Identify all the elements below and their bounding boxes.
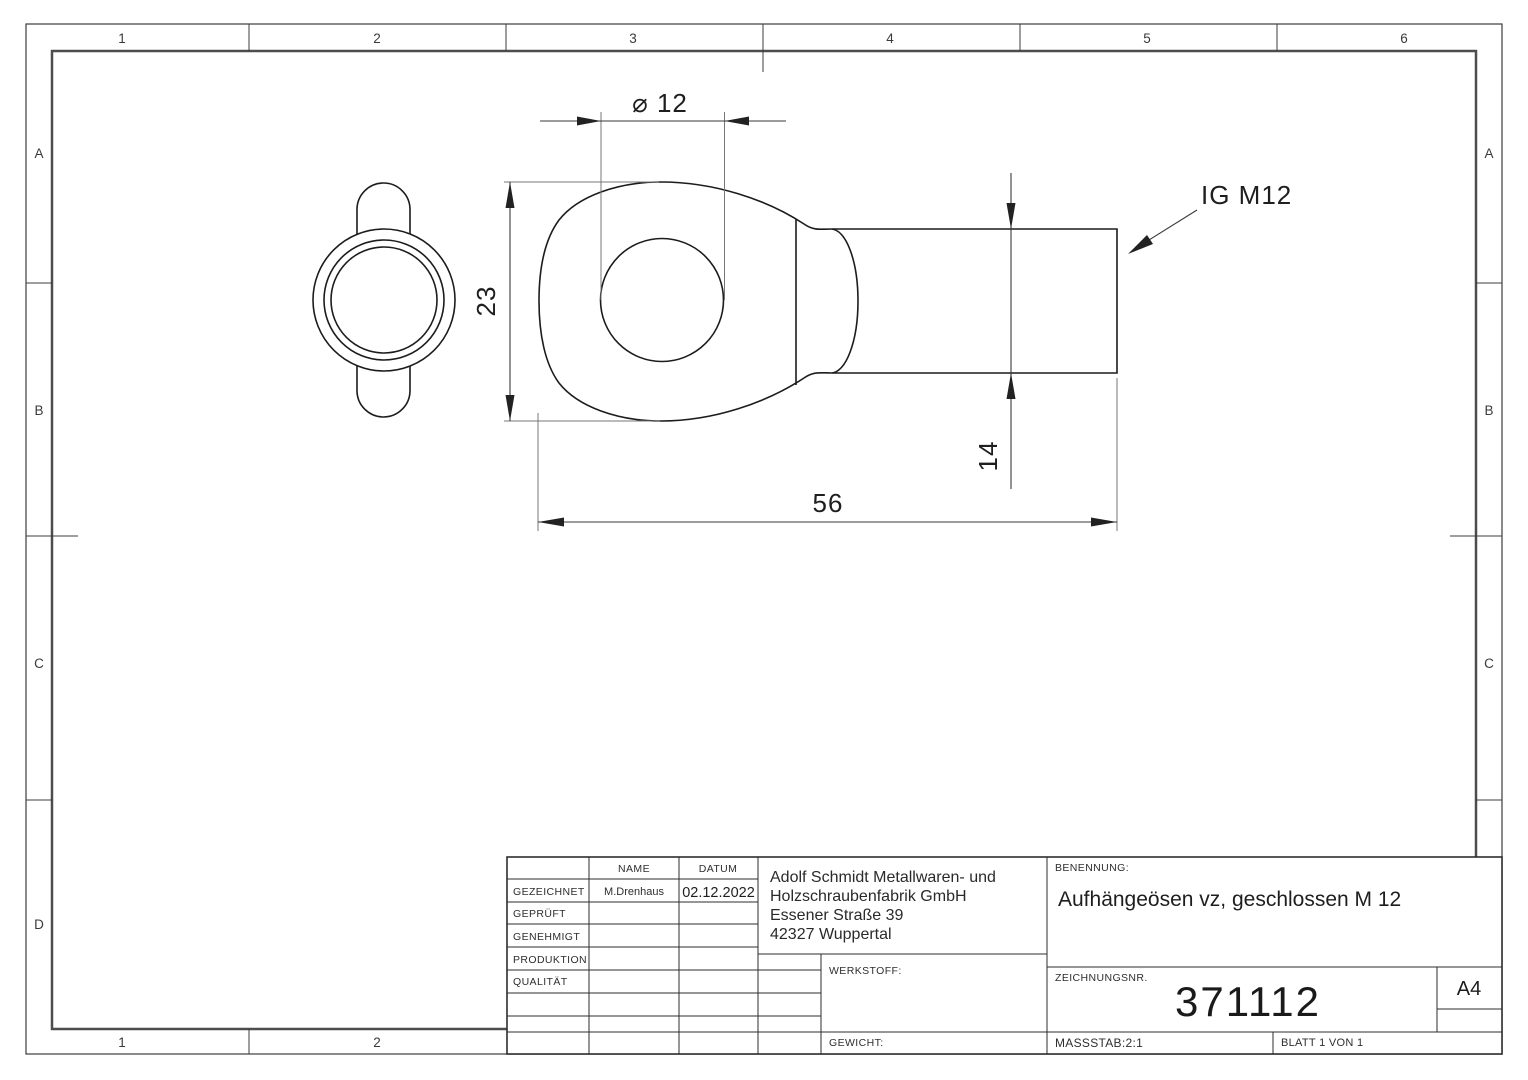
date-header: DATUM	[699, 863, 738, 875]
dim-arrow	[538, 518, 564, 527]
thread-callout: IG M12	[1128, 180, 1292, 254]
drawn-label: GEZEICHNET	[513, 886, 585, 898]
zone-row-label: A	[34, 146, 43, 161]
dim-shaft-diameter-text: 14	[973, 441, 1003, 472]
zone-row-label: A	[1484, 146, 1493, 161]
dim-shaft-diameter: 14	[973, 173, 1016, 489]
dim-arrow	[1007, 373, 1016, 399]
side-view	[539, 182, 1117, 421]
zone-col-label: 2	[373, 31, 381, 46]
dim-total-length-text: 56	[813, 488, 844, 518]
zone-col-label: 3	[629, 31, 637, 46]
zone-row-label: D	[34, 917, 44, 932]
drawing-sheet: 1 2 3 4 5 6 1 2 A B C D A B C ⌀ 12	[0, 0, 1528, 1080]
zone-row-label: C	[34, 656, 44, 671]
zone-col-label: 2	[373, 1035, 381, 1050]
dim-arrow	[506, 182, 515, 208]
front-view	[313, 183, 455, 417]
eye-outline	[539, 182, 858, 421]
zone-col-label: 1	[118, 31, 126, 46]
dim-arrow	[577, 117, 601, 126]
scale-text: MASSSTAB:2:1	[1055, 1036, 1143, 1050]
dim-arrow	[1007, 203, 1016, 229]
dim-eye-height-text: 23	[471, 286, 501, 317]
zone-row-label: C	[1484, 656, 1494, 671]
company-line: 42327 Wuppertal	[770, 926, 892, 943]
thread-label-text: IG M12	[1201, 180, 1292, 210]
leader-arrow	[1128, 235, 1153, 254]
zone-col-label: 5	[1143, 31, 1151, 46]
name-header: NAME	[618, 863, 650, 875]
checked-label: GEPRÜFT	[513, 908, 566, 920]
zone-row-label: B	[1484, 403, 1493, 418]
drawn-date: 02.12.2022	[682, 885, 755, 901]
weight-label: GEWICHT:	[829, 1037, 884, 1049]
front-view-outer-ring	[313, 229, 455, 371]
drawing-no: 371112	[1175, 978, 1321, 1025]
dim-arrow	[506, 395, 515, 421]
company-line: Holzschraubenfabrik GmbH	[770, 888, 967, 905]
zone-col-label: 1	[118, 1035, 126, 1050]
zone-row-label: B	[34, 403, 43, 418]
material-label: WERKSTOFF:	[829, 965, 902, 977]
approved-label: GENEHMIGT	[513, 931, 580, 943]
title-block: NAME DATUM GEZEICHNET GEPRÜFT GENEHMIGT …	[507, 857, 1502, 1054]
company-line: Essener Straße 39	[770, 907, 904, 924]
dim-hole-diameter-text: ⌀ 12	[632, 88, 688, 118]
production-label: PRODUKTION	[513, 954, 587, 966]
zone-col-label: 6	[1400, 31, 1408, 46]
zone-col-label: 4	[886, 31, 894, 46]
quality-label: QUALITÄT	[513, 976, 568, 988]
drawn-name: M.Drenhaus	[604, 886, 664, 898]
dim-arrow	[1091, 518, 1117, 527]
designation-label: BENENNUNG:	[1055, 862, 1129, 874]
company-line: Adolf Schmidt Metallwaren- und	[770, 869, 996, 886]
designation-text: Aufhängeösen vz, geschlossen M 12	[1058, 888, 1401, 911]
paper-size: A4	[1457, 978, 1481, 1000]
drawing-canvas: 1 2 3 4 5 6 1 2 A B C D A B C ⌀ 12	[0, 0, 1528, 1080]
drawing-no-label: ZEICHNUNGSNR.	[1055, 972, 1148, 984]
dim-arrow	[725, 117, 750, 126]
sheet-text: BLATT 1 VON 1	[1281, 1037, 1363, 1049]
shaft-outline	[832, 229, 1117, 373]
